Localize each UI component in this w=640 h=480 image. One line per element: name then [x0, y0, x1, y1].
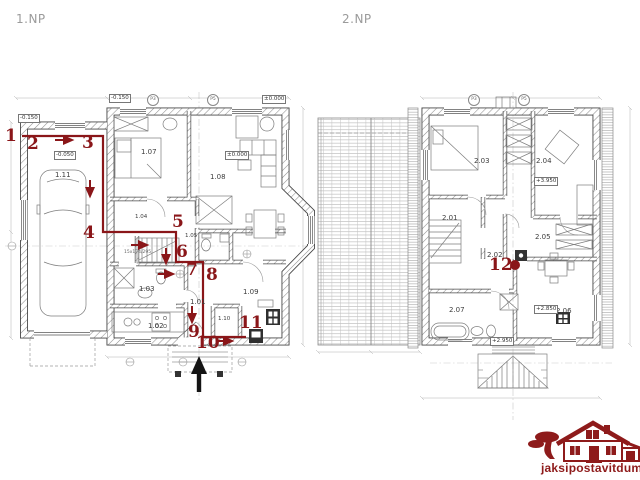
section-marker: P5: [518, 94, 530, 106]
route-step-11: 11: [239, 315, 263, 332]
room-label-1-04: 1.04: [135, 214, 147, 220]
route-step-8: 8: [206, 267, 218, 284]
elevation-label: ±0.000: [225, 151, 249, 160]
room-label-2-07: 2.07: [449, 306, 465, 314]
dining-table-icon: [254, 210, 276, 238]
room-label-1-10: 1.10: [218, 316, 230, 322]
room-label-2-04: 2.04: [536, 157, 552, 165]
floor2-title: 2.NP: [342, 12, 372, 26]
room-label-2-05: 2.05: [535, 233, 551, 241]
room-label-1-08: 1.08: [210, 173, 226, 181]
elevation-label: +3.950: [534, 177, 558, 186]
elevation-label: +2.850: [534, 305, 558, 314]
bed-icon: [115, 138, 161, 178]
armchair-icon: [236, 116, 258, 138]
route-step-5: 5: [172, 214, 184, 231]
room-label-1-02: 1.02: [148, 322, 164, 330]
room-label-1-09: 1.09: [243, 288, 259, 296]
plant-icon: [260, 117, 274, 131]
section-marker: P3: [468, 94, 480, 106]
room-label-1-07: 1.07: [141, 148, 157, 156]
elevation-label: +2.950: [490, 337, 514, 346]
room-label-2-01: 2.01: [442, 214, 458, 222]
entrance-gable-roof: [478, 347, 548, 388]
room-label-1-05: 1.05: [185, 233, 197, 239]
house-logo-icon: [528, 423, 640, 463]
route-step-12: 12: [489, 257, 513, 274]
floor2-plan: [316, 92, 632, 420]
floor1-title: 1.NP: [16, 12, 46, 26]
floorplan-canvas: 1.NP 2.NP 1.01 1.02 1.03 1.04 1.05 1.07 …: [0, 0, 640, 480]
room-label-1-03: 1.03: [139, 285, 155, 293]
elevation-label: -0.050: [54, 151, 76, 160]
room-label-1-01: 1.01: [190, 298, 206, 306]
room-label-2-03: 2.03: [474, 157, 490, 165]
elevation-label: ±0.000: [262, 95, 286, 104]
route-step-7: 7: [186, 262, 198, 279]
route-step-4: 4: [83, 225, 95, 242]
sink-icon: [220, 234, 229, 242]
section-marker: P5: [207, 94, 219, 106]
stair-spec-label: 15x174/295: [124, 250, 151, 255]
route-step-2: 2: [27, 136, 39, 153]
room-label-1-11: 1.11: [55, 171, 71, 179]
washbasin-icon: [471, 327, 483, 336]
section-marker: P3: [147, 94, 159, 106]
route-step-6: 6: [176, 244, 188, 261]
route-step-10: 10: [196, 335, 220, 352]
logo-text: jaksipostavitdum.cz: [541, 461, 640, 475]
route-step-1: 1: [5, 128, 17, 145]
car-icon: [40, 170, 86, 316]
floor1-plan: [5, 92, 315, 402]
toilet-icon: [487, 325, 496, 337]
bathtub-icon: [431, 323, 469, 340]
elevation-label: -0.150: [18, 114, 40, 123]
toilet-icon: [202, 239, 211, 251]
elevation-label: -0.150: [109, 94, 131, 103]
floor1-furniture: [37, 116, 284, 332]
north-arrow: [191, 356, 207, 392]
table-icon: [545, 260, 567, 276]
route-step-3: 3: [82, 135, 94, 152]
floor2-stairs: [429, 220, 461, 263]
axis-lines-floor1: [5, 92, 314, 402]
